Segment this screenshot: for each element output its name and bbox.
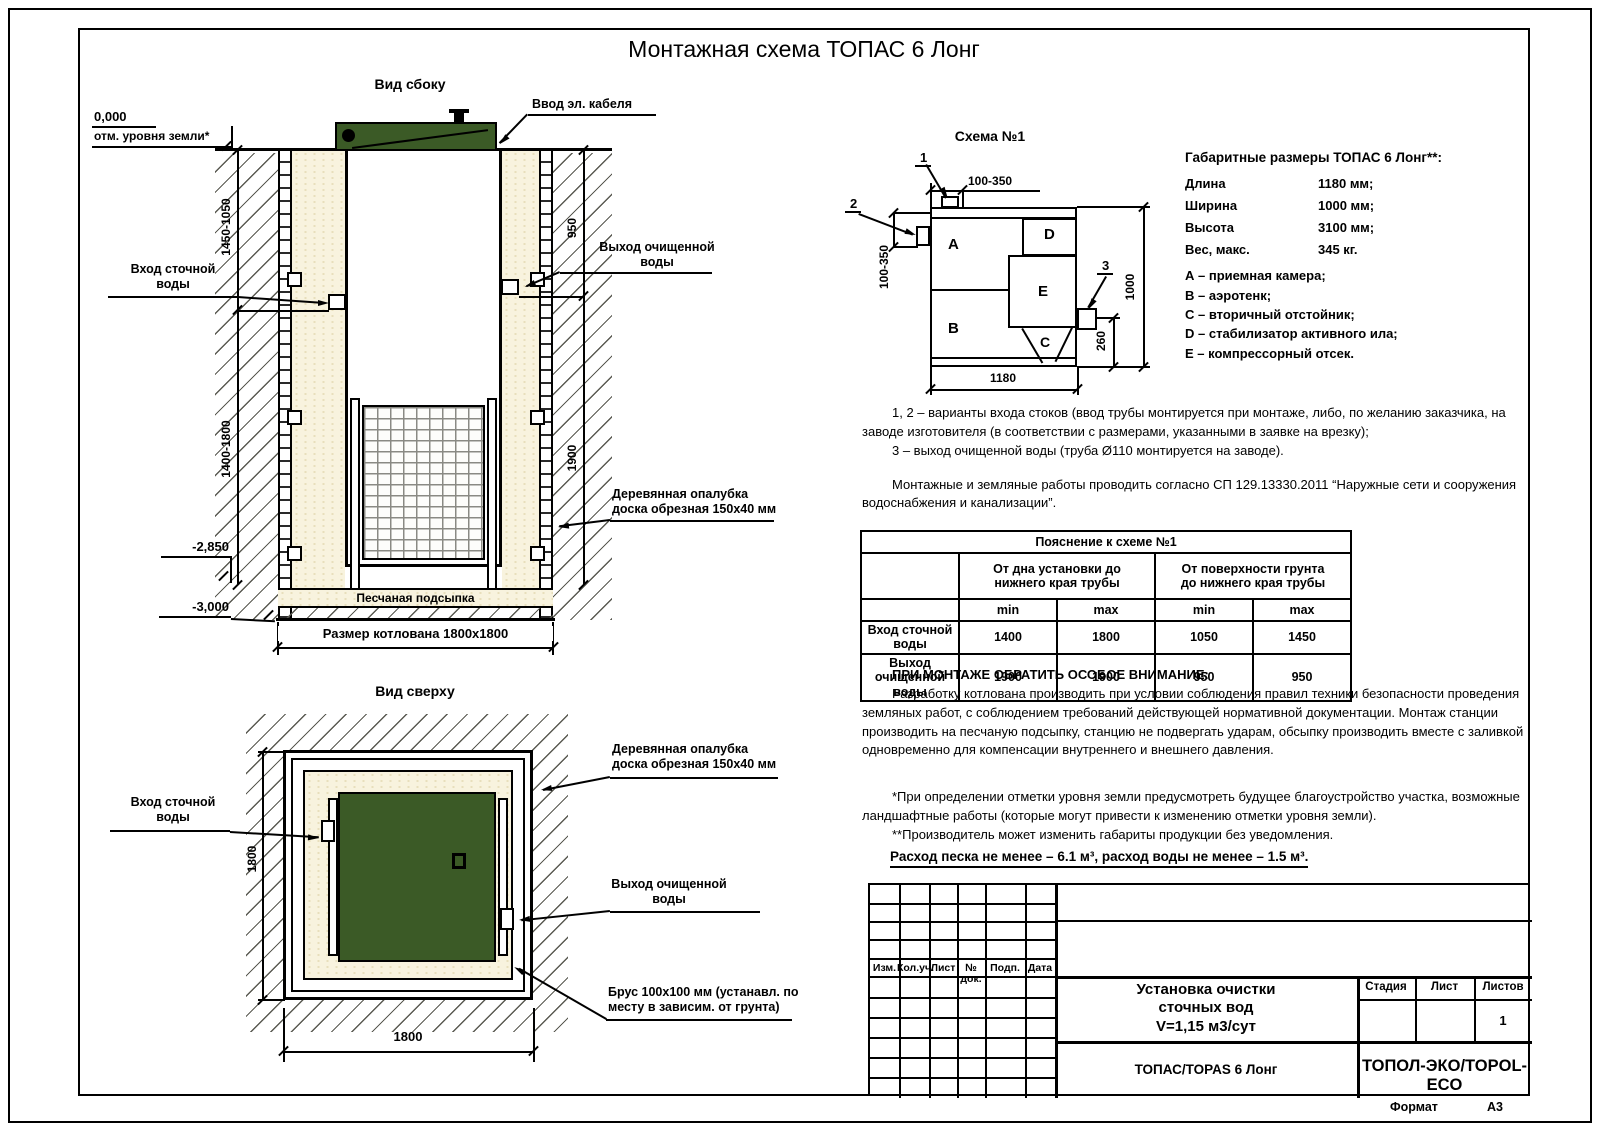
schema-dim-top-line <box>930 190 1040 192</box>
spec-label: Вес, макс. <box>1185 242 1250 257</box>
schema-dim-bottom-line <box>930 389 1077 391</box>
stamp-col-koluch: Кол.уч. <box>897 963 931 974</box>
inlet-leader-arrow <box>318 300 329 306</box>
dim-left-lower: 1400-1800 <box>219 414 233 484</box>
attention-title: ПРИ МОНТАЖЕ ОБРАТИТЬ ОСОБОЕ ВНИМАНИЕ: <box>862 666 1534 685</box>
stamp-model: ТОПАС/TOPAS 6 Лонг <box>1055 1062 1357 1077</box>
note-outlet: 3 – выход очищенной воды (труба Ø110 мон… <box>862 442 1522 461</box>
top-dim-bottom: 1800 <box>333 1030 483 1044</box>
stamp-col-data: Дата <box>1025 963 1055 974</box>
dim-extension <box>1077 367 1079 395</box>
sand-bedding-label: Песчаная подсыпка <box>278 591 553 605</box>
dim-left-upper: 1450-1050 <box>219 192 233 262</box>
ground-note: отм. уровня земли* <box>94 129 244 143</box>
inlet-extension-line <box>237 310 329 312</box>
table-row: Вход сточной воды 1400 1800 1050 1450 <box>861 621 1351 654</box>
schema-label-d: D <box>1044 226 1055 244</box>
side-view-label: Вид сбоку <box>350 76 470 93</box>
dim-extension <box>1077 206 1150 208</box>
dim-extension <box>893 246 918 248</box>
dim-extension <box>962 190 964 207</box>
level-2850-leader <box>230 556 232 583</box>
schema-callout-2: 2 <box>850 196 857 211</box>
title-block: Изм. Кол.уч. Лист № док. Подп. Дата Уста… <box>868 883 1530 1096</box>
schema-dim-left: 100-350 <box>877 232 891 302</box>
stamp-stage-label: Стадия <box>1357 981 1415 993</box>
level-3000-underline <box>159 616 231 618</box>
stamp-grid-line <box>957 885 959 1098</box>
cable-entry-underline <box>528 114 656 116</box>
dim-right-upper: 950 <box>565 208 579 248</box>
beam-block <box>287 410 302 425</box>
note-variants: 1, 2 – варианты входа стоков (ввод трубы… <box>862 404 1522 442</box>
vent-pipe <box>454 112 464 124</box>
outlet-label-side: Выход очищенной воды <box>598 240 716 270</box>
dim-extension <box>1097 317 1120 319</box>
spec-value: 345 кг. <box>1318 242 1358 257</box>
tank-leg-left <box>350 398 360 595</box>
outlet-top-underline <box>610 911 760 913</box>
inlet-top-arrow <box>308 834 319 841</box>
dim-right-lower: 1900 <box>565 438 579 478</box>
top-dim-line-bottom <box>283 1051 533 1053</box>
stamp-sheets-label: Листов <box>1474 981 1532 993</box>
top-tank-lid <box>338 792 496 962</box>
level-2850: -2,850 <box>163 539 229 554</box>
outlet-extension-line <box>519 296 583 298</box>
attention-body: Разработку котлована производить при усл… <box>862 685 1534 760</box>
stamp-grid-line <box>929 885 931 1098</box>
top-dim-side: 1800 <box>245 829 259 889</box>
level-zero-leader <box>231 126 233 151</box>
top-rail-right <box>498 798 508 956</box>
dim-extension <box>893 212 930 214</box>
dim-extension <box>283 1008 285 1062</box>
table-title: Пояснение к схеме №1 <box>861 531 1351 553</box>
spec-value: 3100 мм; <box>1318 220 1374 235</box>
schema-dim-top: 100-350 <box>968 175 1028 188</box>
schema-label-b: B <box>948 320 959 338</box>
beam-block <box>287 546 302 561</box>
callout-underline <box>1097 273 1113 275</box>
table-max-header: max <box>1253 599 1351 621</box>
schema-dim-left-line <box>893 213 895 247</box>
outlet-leader-underline <box>560 272 712 274</box>
schema-inlet-side-pipe <box>916 226 930 246</box>
specs-title: Габаритные размеры ТОПАС 6 Лонг**: <box>1185 150 1525 166</box>
level-2850-underline <box>161 556 231 558</box>
cable-entry-label: Ввод эл. кабеля <box>532 97 662 112</box>
legend-item: Е – компрессорный отсек. <box>1185 346 1354 361</box>
stamp-sheet-label: Лист <box>1415 981 1474 993</box>
stamp-grid-line <box>870 939 1055 941</box>
outlet-top-arrow <box>519 916 531 923</box>
pit-bottom-line <box>276 618 555 621</box>
spec-value: 1000 мм; <box>1318 198 1374 213</box>
legend-item: С – вторичный отстойник; <box>1185 307 1355 322</box>
stamp-line <box>1055 976 1532 979</box>
schema-dim-right: 1000 <box>1123 262 1137 312</box>
table-cell: 1450 <box>1253 621 1351 654</box>
level-zero: 0,000 <box>94 109 164 124</box>
stamp-col-podp: Подп. <box>985 963 1025 974</box>
stamp-col-ndok: № док. <box>955 963 987 984</box>
beam-label: Брус 100х100 мм (устанавл. по месту в за… <box>608 985 808 1015</box>
tank-leg-right <box>487 398 497 595</box>
table-min-header: min <box>1155 599 1253 621</box>
stamp-line <box>1055 920 1532 922</box>
pit-size-label: Размер котлована 1800х1800 <box>278 626 553 641</box>
stamp-grid-line <box>870 1037 1055 1039</box>
stamp-col-list: Лист <box>929 963 957 974</box>
notes-block: 1, 2 – варианты входа стоков (ввод трубы… <box>862 404 1522 513</box>
stamp-company: ТОПОЛ-ЭКО/TOPOL-ECO <box>1357 1057 1532 1095</box>
top-lid-hatch-square <box>452 853 466 869</box>
schema-dim-outlet: 260 <box>1094 321 1108 361</box>
dim-line-right <box>583 150 585 585</box>
table-empty-cell <box>861 599 959 621</box>
sand-backfill-right <box>502 151 539 606</box>
beam-underline <box>606 1019 792 1021</box>
inlet-top-underline <box>110 830 230 832</box>
spec-label: Ширина <box>1185 198 1237 213</box>
inlet-leader-underline <box>108 296 238 298</box>
pit-dim-line <box>277 647 553 649</box>
schema-title: Схема №1 <box>915 128 1065 145</box>
attention-block: ПРИ МОНТАЖЕ ОБРАТИТЬ ОСОБОЕ ВНИМАНИЕ: Ра… <box>862 666 1534 760</box>
outlet-pipe <box>501 279 519 295</box>
table-group1-header: От дна установки до нижнего края трубы <box>959 553 1155 599</box>
top-outlet-pipe <box>500 908 514 930</box>
legend-item: В – аэротенк; <box>1185 288 1271 303</box>
note-sp: Монтажные и земляные работы проводить со… <box>862 476 1522 514</box>
stamp-doc-title: Установка очистки сточных вод V=1,15 м3/… <box>1055 981 1357 1036</box>
schema-label-a: A <box>948 236 959 254</box>
top-inlet-pipe <box>321 820 335 842</box>
stamp-col-izm: Изм. <box>870 963 899 974</box>
footnotes-block: *При определении отметки уровня земли пр… <box>862 788 1538 845</box>
stamp-grid-line <box>870 1077 1055 1079</box>
table-cell: 1050 <box>1155 621 1253 654</box>
schema-dim-bottom: 1180 <box>973 372 1033 385</box>
table-corner-cell <box>861 553 959 599</box>
outlet-label-top: Выход очищенной воды <box>608 877 730 907</box>
inlet-label-top: Вход сточной воды <box>118 795 228 825</box>
stamp-grid-line <box>870 921 1055 923</box>
formwork-leader-underline <box>610 520 774 522</box>
table-row-label: Вход сточной воды <box>861 621 959 654</box>
spec-label: Высота <box>1185 220 1234 235</box>
formwork-leader-arrow <box>558 522 570 529</box>
table-min-header: min <box>959 599 1057 621</box>
schema-label-c: C <box>1040 334 1050 351</box>
table-max-header: max <box>1057 599 1155 621</box>
stamp-grid-line <box>870 1057 1055 1059</box>
inlet-label-side: Вход сточной воды <box>118 262 228 292</box>
dim-line-left <box>237 150 239 585</box>
schema-dim-right-line <box>1143 207 1145 367</box>
beam-block <box>530 546 545 561</box>
beam-block <box>530 410 545 425</box>
dim-extension <box>930 367 932 395</box>
inlet-pipe <box>328 294 346 310</box>
legend-item: А – приемная камера; <box>1185 268 1326 283</box>
dim-extension <box>533 1008 535 1062</box>
page-title: Монтажная схема ТОПАС 6 Лонг <box>78 36 1530 63</box>
top-dim-line-left <box>262 752 264 1000</box>
spec-label: Длина <box>1185 176 1226 191</box>
table-cell: 1400 <box>959 621 1057 654</box>
stamp-grid-line <box>870 997 1055 999</box>
spec-value: 1180 мм; <box>1318 176 1373 191</box>
level-3000: -3,000 <box>161 599 229 614</box>
schema-ab-divider <box>930 289 1010 291</box>
drawing-sheet: Монтажная схема ТОПАС 6 Лонг Вид сбоку П… <box>0 0 1600 1131</box>
stamp-grid-line <box>1025 885 1027 1098</box>
format-label: Формат <box>1390 1100 1438 1115</box>
schema-callout-3: 3 <box>1102 258 1109 273</box>
stamp-line <box>1357 999 1532 1001</box>
table-group2-header: От поверхности грунта до нижнего края тр… <box>1155 553 1351 599</box>
ground-note-underline <box>92 146 233 148</box>
stamp-grid-line <box>870 903 1055 905</box>
stamp-grid-line <box>899 885 901 1098</box>
footnote-1: *При определении отметки уровня земли пр… <box>862 788 1538 826</box>
tank-lower-section <box>362 405 485 560</box>
sand-backfill-left <box>292 151 345 606</box>
stamp-sheets-value: 1 <box>1474 1013 1532 1028</box>
table-cell: 1800 <box>1057 621 1155 654</box>
format-value: А3 <box>1487 1100 1503 1115</box>
stamp-grid-line <box>870 958 1055 960</box>
formwork-label-side: Деревянная опалубка доска обрезная 150х4… <box>612 487 782 517</box>
top-view-label: Вид сверху <box>345 683 485 700</box>
schema-label-e: E <box>1038 283 1048 301</box>
stamp-grid-line <box>870 1017 1055 1019</box>
formwork-label-top: Деревянная опалубка доска обрезная 150х4… <box>612 742 787 772</box>
schema-dim-260-line <box>1113 318 1115 367</box>
footnote-2: **Производитель может изменить габариты … <box>862 826 1538 845</box>
formwork-top-underline <box>610 777 778 779</box>
stamp-grid-line <box>985 885 987 1098</box>
legend-item: D – стабилизатор активного ила; <box>1185 326 1398 341</box>
lid-dot <box>342 129 355 142</box>
stamp-line <box>1055 1041 1532 1044</box>
consumption-note: Расход песка не менее – 6.1 м³, расход в… <box>890 849 1308 868</box>
beam-block <box>287 272 302 287</box>
level-zero-underline <box>92 126 156 128</box>
